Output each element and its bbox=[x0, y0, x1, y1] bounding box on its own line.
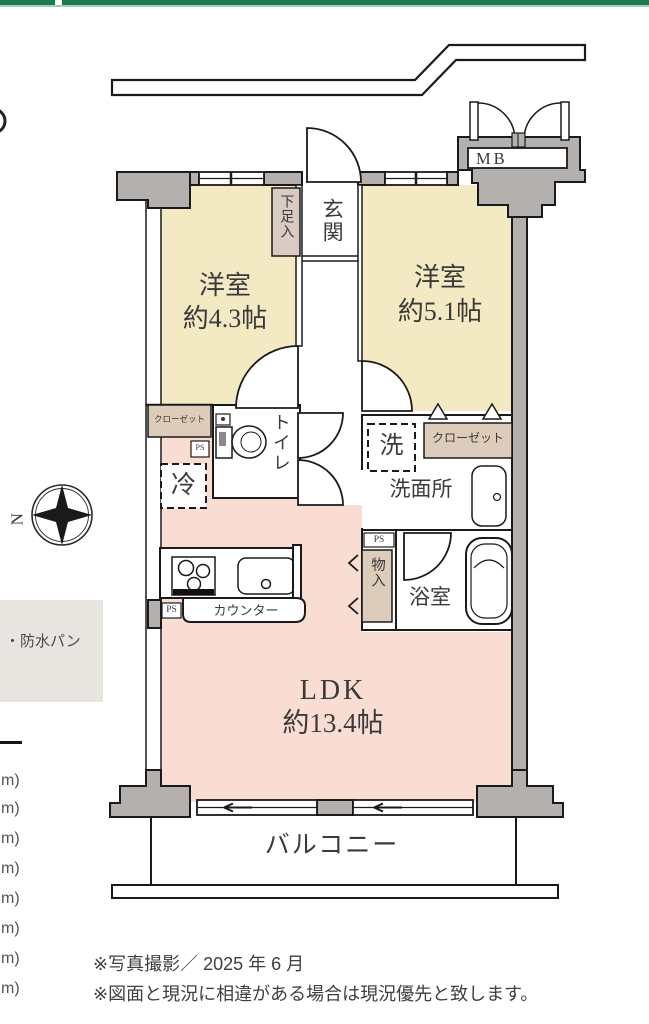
closet-left-label: クローゼット bbox=[149, 415, 210, 424]
ps-label-left: PS bbox=[191, 444, 209, 453]
cropped-logo-circle bbox=[0, 109, 5, 133]
bedroom1-label: 洋室 bbox=[160, 272, 290, 301]
mb-door-left-swing bbox=[478, 103, 515, 140]
storage-label: 物入 bbox=[368, 557, 384, 617]
dimension-fragment: m) bbox=[1, 860, 41, 878]
closet-right-label: クローゼット bbox=[424, 432, 512, 445]
mb-door-right-leaf bbox=[561, 102, 569, 140]
fridge-label: 冷 bbox=[161, 472, 206, 500]
entrance-door-swing bbox=[307, 128, 361, 182]
ps-label-bath: PS bbox=[364, 535, 394, 545]
mb-door-right-swing bbox=[524, 103, 561, 140]
bedroom1-size: 約4.3帖 bbox=[150, 305, 300, 334]
dimension-fragment: m) bbox=[1, 772, 41, 790]
ldk-size: 約13.4帖 bbox=[258, 709, 408, 739]
common-corridor-outline bbox=[112, 45, 585, 95]
dimension-fragment: m) bbox=[1, 980, 41, 998]
dimension-fragment: m) bbox=[1, 830, 41, 848]
bath-label: 浴室 bbox=[398, 586, 462, 609]
dimension-fragment: m) bbox=[1, 800, 41, 818]
note-photo-date: ※写真撮影／ 2025 年 6 月 bbox=[93, 950, 304, 976]
mb-door-left-leaf bbox=[470, 102, 478, 140]
meter-box-label: MB bbox=[476, 150, 508, 168]
ldk-label: LDK bbox=[263, 676, 403, 707]
washroom-label: 洗面所 bbox=[366, 478, 476, 501]
toilet-label: トイレ bbox=[270, 413, 290, 501]
compass-rose bbox=[32, 485, 92, 545]
shoe-box-label: 下足入 bbox=[278, 194, 293, 258]
note-disclaimer: ※図面と現況に相違がある場合は現況優先と致します。 bbox=[93, 980, 538, 1006]
washer-label: 洗 bbox=[368, 433, 415, 459]
bedroom2-label: 洋室 bbox=[375, 264, 505, 293]
legend-box: ・防水パン bbox=[0, 600, 103, 702]
dimension-fragment: m) bbox=[1, 950, 41, 968]
cropped-list-underline bbox=[0, 741, 22, 744]
dimension-fragment: m) bbox=[1, 890, 41, 908]
dimension-fragment: m) bbox=[1, 920, 41, 938]
bathtub-inner bbox=[471, 544, 507, 618]
entrance-label: 玄関 bbox=[320, 198, 343, 298]
floorplan-drawing bbox=[0, 0, 649, 1024]
counter-label: カウンター bbox=[196, 604, 296, 618]
ps-label-kitchen: PS bbox=[162, 605, 181, 615]
bedroom2-size: 約5.1帖 bbox=[365, 298, 515, 327]
balcony-label: バルコニー bbox=[252, 832, 412, 860]
compass-north-label: N bbox=[9, 505, 28, 525]
floorplan-page: 洋室 約4.3帖 洋室 約5.1帖 LDK 約13.4帖 玄関 下足入 トイレ … bbox=[0, 0, 649, 1024]
legend-waterproof-pan: ・防水パン bbox=[5, 630, 81, 651]
